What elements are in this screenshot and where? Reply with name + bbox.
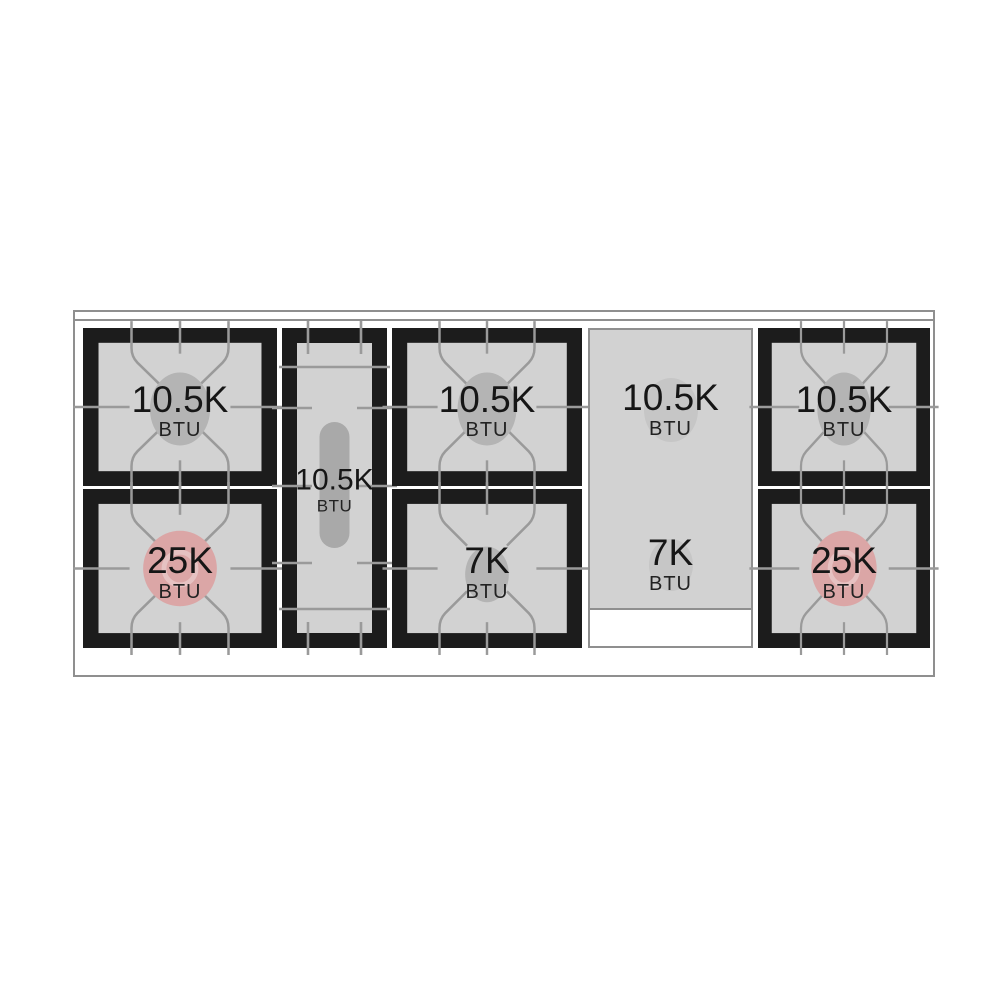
section-center-oval-burner: 10.5K BTU [282, 328, 387, 648]
burner-cap-icon [465, 547, 509, 603]
burner-grate-graphic [392, 328, 582, 486]
burner-middle-front: 7K BTU [392, 489, 582, 648]
cooktop-back-edge [75, 312, 933, 321]
burner-cap-icon [458, 372, 517, 445]
cooktop-body: 10.5K BTU 25K BTU [73, 310, 935, 677]
burner-right-front: 25K BTU [758, 489, 930, 648]
section-griddle: 10.5K BTU 7K BTU [588, 328, 753, 648]
burner-grate-graphic [83, 489, 277, 648]
burner-right-rear: 10.5K BTU [758, 328, 930, 486]
burner-grate-graphic [758, 489, 930, 648]
burner-middle-rear: 10.5K BTU [392, 328, 582, 486]
griddle-plate: 10.5K BTU 7K BTU [588, 328, 753, 648]
section-left-burner-pair: 10.5K BTU 25K BTU [83, 328, 277, 648]
griddle-burner-spot-front [649, 539, 693, 591]
burner-cap-icon [150, 372, 210, 445]
section-middle-burner-pair: 10.5K BTU 7K BTU [392, 328, 582, 648]
oval-burner-grate-graphic [282, 328, 387, 648]
griddle-burner-spot-rear [644, 378, 698, 442]
burner-grate-graphic [392, 489, 582, 648]
burner-grate-graphic [758, 328, 930, 486]
griddle-front-strip [590, 608, 751, 646]
burner-cap-icon [817, 372, 870, 445]
power-burner-icon [143, 531, 217, 607]
section-right-burner-pair: 10.5K BTU 25K BTU [758, 328, 930, 648]
burner-left-rear: 10.5K BTU [83, 328, 277, 486]
diagram-canvas: 10.5K BTU 25K BTU [0, 0, 1000, 1000]
burner-sections: 10.5K BTU 25K BTU [83, 328, 931, 648]
burner-grate-graphic [83, 328, 277, 486]
burner-left-front: 25K BTU [83, 489, 277, 648]
power-burner-icon [811, 531, 876, 607]
